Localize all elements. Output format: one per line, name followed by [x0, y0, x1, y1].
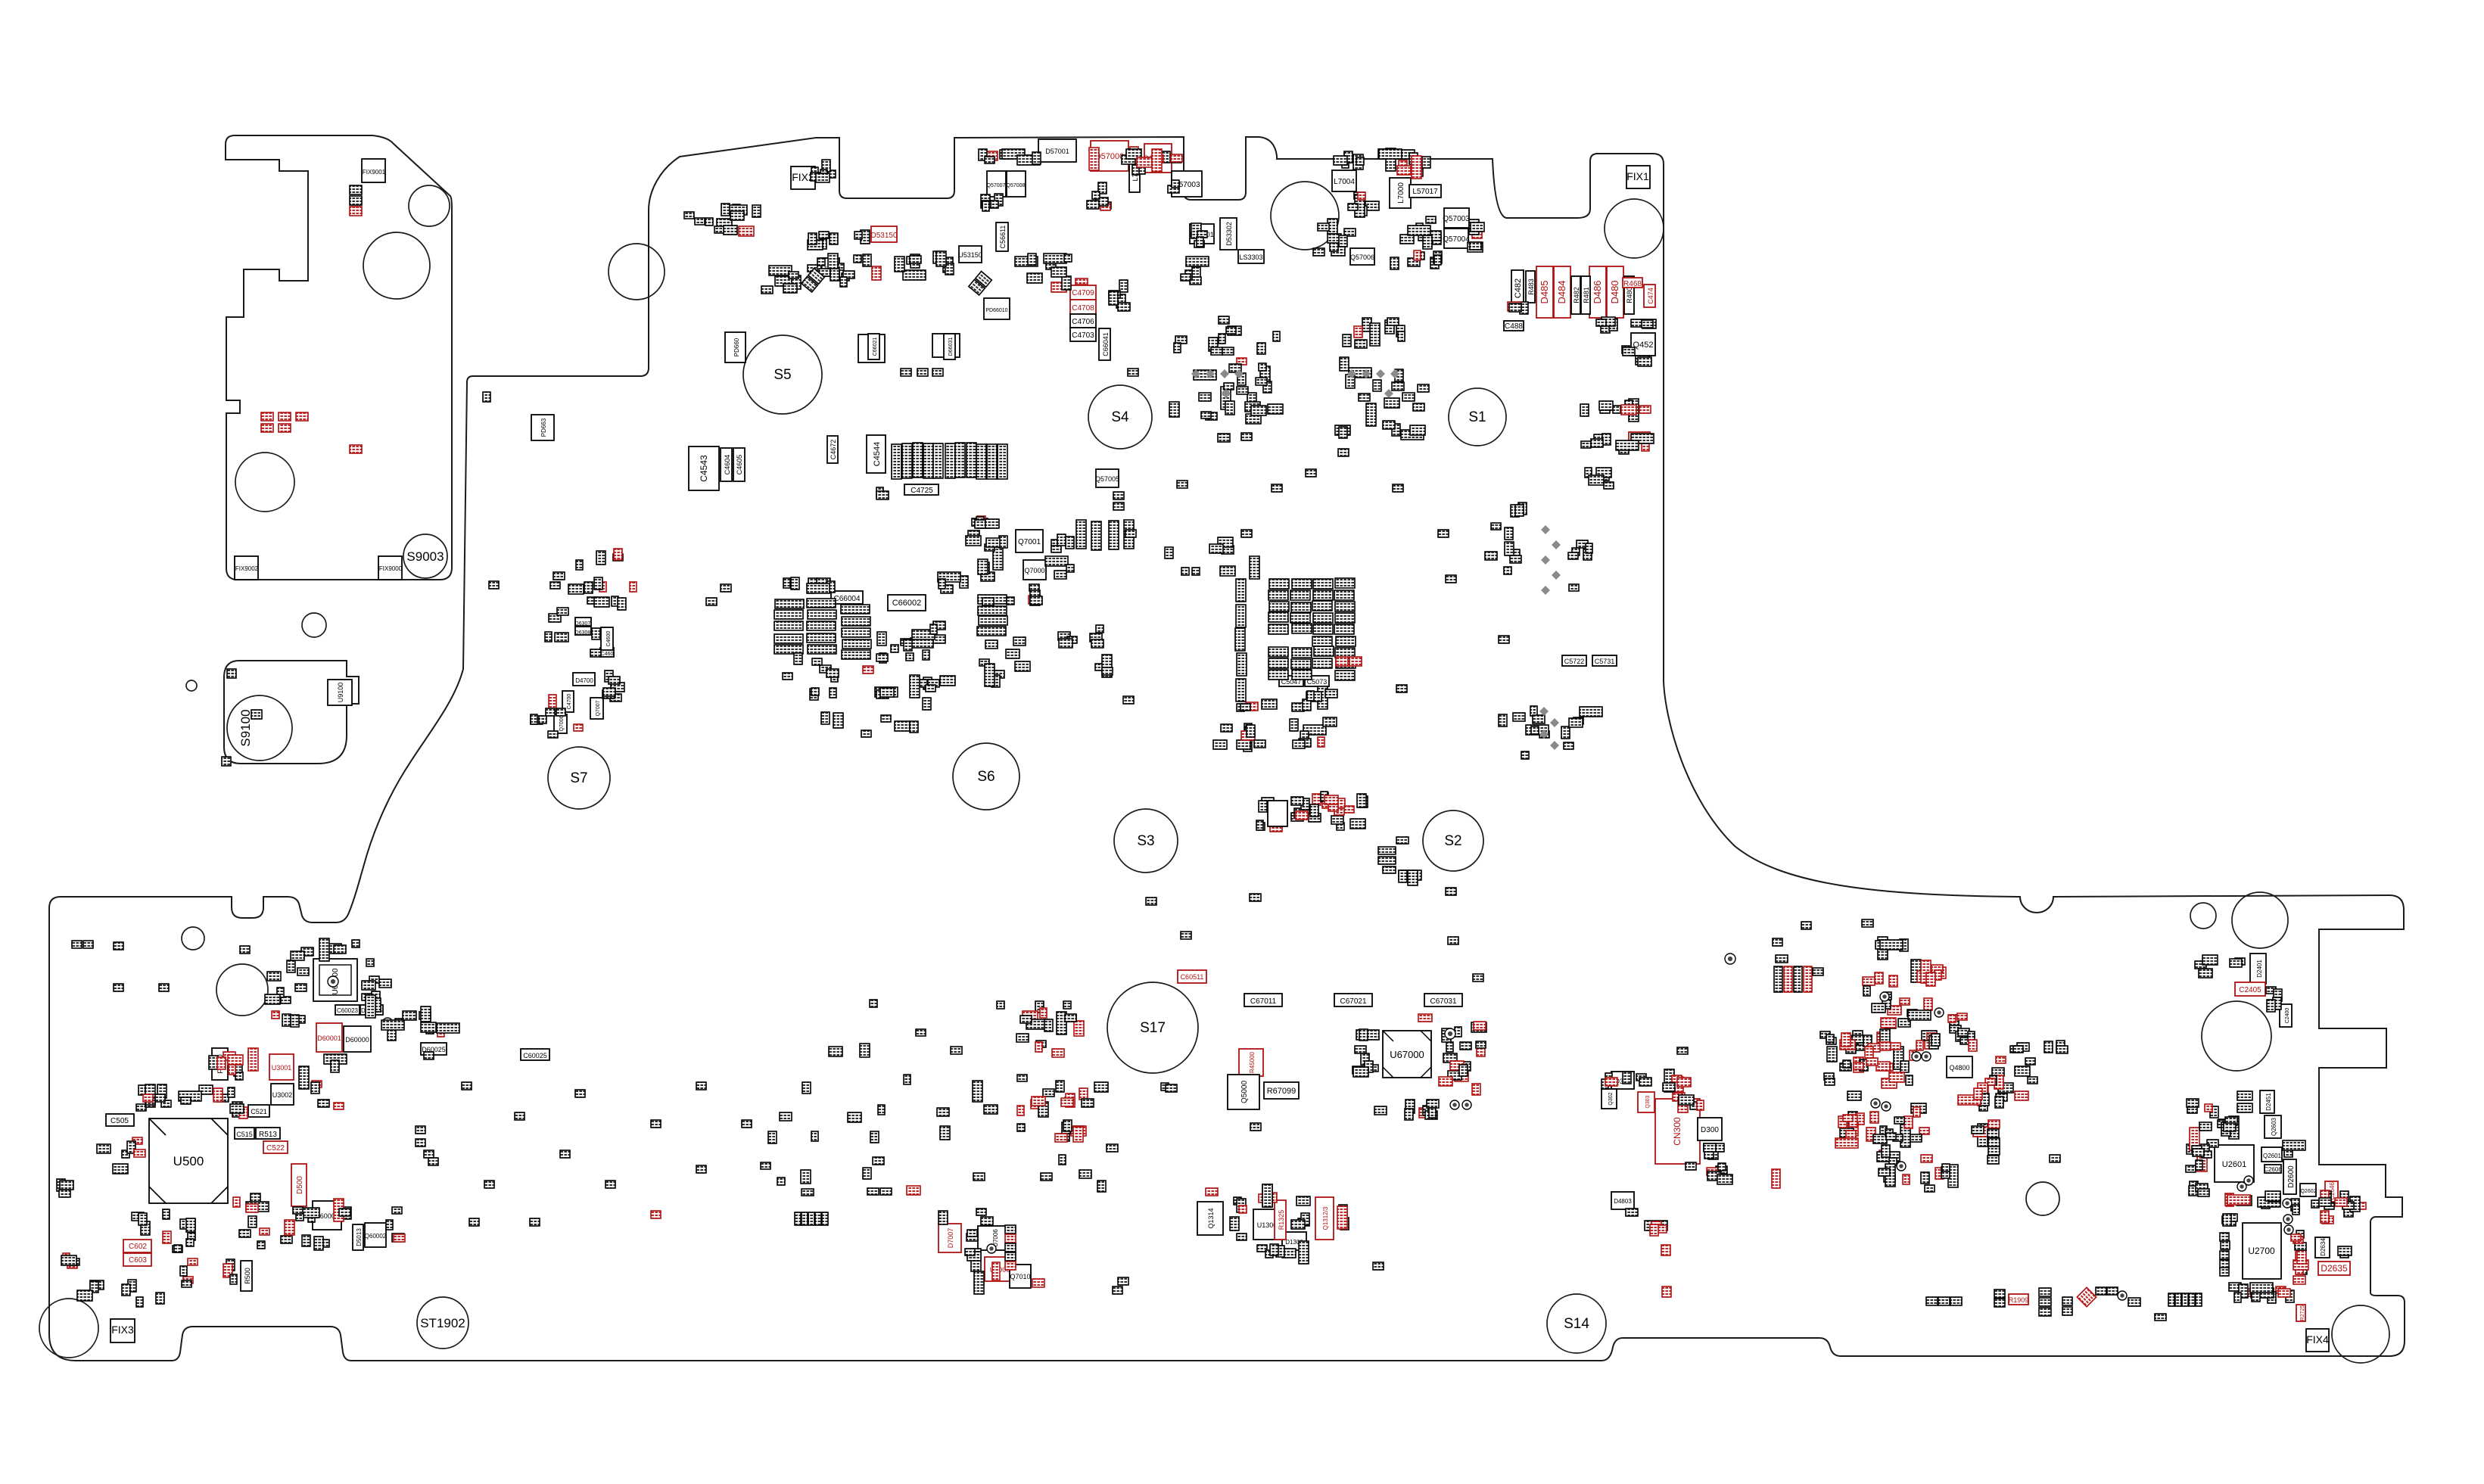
svg-text:C4700: C4700: [567, 694, 572, 710]
svg-text:D300: D300: [1701, 1126, 1719, 1134]
svg-text:Q2603: Q2603: [2271, 1117, 2277, 1136]
svg-text:D2634: D2634: [2320, 1238, 2327, 1256]
svg-text:D485: D485: [1539, 280, 1550, 303]
svg-text:U3001: U3001: [272, 1064, 292, 1072]
svg-text:Q7007: Q7007: [596, 700, 601, 716]
svg-text:S4: S4: [1111, 409, 1129, 425]
svg-text:Q7000: Q7000: [1024, 567, 1044, 574]
svg-text:C2400: C2400: [2285, 1008, 2290, 1024]
svg-text:U2700: U2700: [2248, 1246, 2275, 1256]
svg-text:R513: R513: [259, 1131, 277, 1139]
svg-text:FIX9002: FIX9002: [235, 565, 259, 572]
svg-text:R468: R468: [1623, 280, 1642, 288]
svg-text:Q57005: Q57005: [1095, 475, 1119, 483]
svg-text:S14: S14: [1564, 1316, 1589, 1332]
svg-text:Q7001: Q7001: [1018, 538, 1041, 546]
svg-text:S6: S6: [977, 769, 995, 785]
svg-text:R1325: R1325: [1278, 1210, 1285, 1230]
svg-text:C66021: C66021: [873, 338, 878, 356]
svg-text:LS3303: LS3303: [1239, 254, 1262, 261]
svg-text:R2725: R2725: [2300, 1305, 2305, 1321]
svg-text:C67011: C67011: [1250, 997, 1277, 1006]
svg-text:D66031: D66031: [948, 338, 954, 356]
svg-text:Q1314: Q1314: [1207, 1208, 1215, 1228]
svg-text:C56611: C56611: [999, 226, 1007, 249]
svg-text:S7: S7: [570, 770, 587, 786]
svg-text:C4672: C4672: [830, 440, 837, 460]
svg-text:C66041: C66041: [1102, 332, 1110, 356]
svg-text:S1: S1: [1468, 409, 1486, 425]
svg-text:Q60002: Q60002: [365, 1233, 387, 1240]
svg-text:C460: C460: [601, 652, 614, 657]
svg-text:D4803: D4803: [1614, 1198, 1632, 1205]
svg-text:Q302: Q302: [1608, 1092, 1614, 1105]
svg-text:R482: R482: [1573, 287, 1580, 303]
svg-text:R481: R481: [1583, 287, 1590, 303]
svg-text:D60000: D60000: [345, 1036, 369, 1044]
svg-text:C4725: C4725: [910, 487, 933, 495]
svg-text:C60025: C60025: [523, 1052, 547, 1059]
svg-text:FIX9000: FIX9000: [379, 565, 403, 572]
svg-text:S17: S17: [1140, 1020, 1166, 1036]
svg-text:U2601: U2601: [2222, 1160, 2246, 1169]
svg-text:C474: C474: [1647, 288, 1654, 304]
svg-text:R480: R480: [1626, 287, 1633, 303]
svg-text:R483: R483: [1527, 278, 1535, 295]
svg-text:CN300: CN300: [1672, 1117, 1682, 1146]
svg-text:FIX9001: FIX9001: [363, 169, 386, 176]
svg-text:Q7010: Q7010: [1010, 1273, 1030, 1280]
svg-text:C521: C521: [251, 1108, 267, 1115]
svg-text:U3002: U3002: [272, 1091, 293, 1099]
svg-text:D60001: D60001: [317, 1034, 341, 1042]
svg-text:D7007: D7007: [947, 1228, 954, 1249]
svg-text:S9100: S9100: [238, 709, 253, 746]
svg-text:Q57004: Q57004: [1443, 235, 1470, 244]
svg-text:C2405: C2405: [2239, 986, 2261, 994]
svg-text:D486: D486: [1592, 280, 1603, 303]
svg-text:C522: C522: [266, 1144, 285, 1153]
svg-text:S3: S3: [1137, 833, 1154, 849]
svg-text:L7000: L7000: [1397, 182, 1405, 204]
svg-text:FIX3: FIX3: [111, 1324, 134, 1336]
svg-text:Q303: Q303: [1645, 1095, 1651, 1108]
svg-text:D6307: D6307: [575, 621, 591, 627]
svg-text:R1909: R1909: [2009, 1296, 2029, 1304]
svg-text:U9100: U9100: [337, 683, 344, 703]
svg-text:Q7006: Q7006: [559, 715, 565, 731]
svg-text:D500: D500: [296, 1176, 304, 1194]
svg-text:S5: S5: [774, 367, 791, 383]
svg-text:C4600: C4600: [606, 631, 612, 647]
svg-text:D2635: D2635: [2321, 1263, 2348, 1274]
svg-text:U53150: U53150: [958, 251, 982, 259]
svg-text:D2451: D2451: [2265, 1093, 2272, 1111]
svg-text:L7004: L7004: [1334, 178, 1355, 186]
svg-text:Q4800: Q4800: [1949, 1064, 1969, 1072]
svg-text:Q57003: Q57003: [1443, 215, 1470, 223]
svg-text:D4700: D4700: [575, 677, 593, 684]
svg-text:ST1902: ST1902: [420, 1316, 465, 1330]
svg-text:Q2602: Q2602: [2300, 1189, 2316, 1194]
svg-text:R67099: R67099: [1267, 1087, 1296, 1096]
svg-text:C4706: C4706: [1072, 318, 1094, 326]
svg-text:D57001: D57001: [1045, 148, 1069, 155]
svg-text:R45000: R45000: [1249, 1051, 1256, 1073]
svg-text:C4543: C4543: [699, 455, 709, 482]
svg-text:C67021: C67021: [1340, 997, 1366, 1006]
svg-text:C488: C488: [1505, 322, 1523, 331]
svg-text:C602: C602: [129, 1243, 147, 1251]
svg-text:Q57008: Q57008: [1007, 183, 1026, 188]
svg-text:Q57007: Q57007: [987, 183, 1006, 188]
svg-text:D53302: D53302: [1225, 222, 1233, 246]
svg-text:D6308: D6308: [575, 630, 591, 636]
svg-text:U67000: U67000: [1390, 1049, 1424, 1060]
svg-text:Q2601: Q2601: [2263, 1153, 2282, 1159]
svg-text:C4708: C4708: [1072, 304, 1094, 313]
svg-text:C67031: C67031: [1430, 997, 1456, 1006]
svg-text:U500: U500: [173, 1154, 204, 1168]
svg-text:C2606: C2606: [2264, 1166, 2282, 1173]
svg-text:C60023: C60023: [337, 1007, 359, 1014]
svg-text:C5731: C5731: [1595, 658, 1615, 665]
svg-text:C515: C515: [236, 1131, 253, 1138]
svg-text:Q5000: Q5000: [1240, 1081, 1249, 1103]
svg-text:D484: D484: [1556, 280, 1567, 303]
svg-text:D5013: D5013: [356, 1228, 363, 1246]
svg-text:C66002: C66002: [892, 599, 922, 608]
svg-text:C4709: C4709: [1072, 289, 1094, 297]
svg-text:PD66010: PD66010: [985, 308, 1007, 313]
svg-text:D53150: D53150: [870, 232, 897, 240]
svg-text:C505: C505: [111, 1117, 129, 1125]
svg-text:L57017: L57017: [1412, 188, 1438, 196]
svg-text:D480: D480: [1609, 280, 1620, 303]
svg-text:D2401: D2401: [2256, 960, 2263, 978]
svg-text:C66004: C66004: [833, 595, 860, 603]
svg-text:C4703: C4703: [1072, 331, 1094, 340]
svg-text:FIX1: FIX1: [1626, 170, 1649, 182]
svg-text:C4544: C4544: [873, 442, 882, 466]
svg-text:C482: C482: [1514, 278, 1523, 298]
svg-text:D2600: D2600: [2287, 1165, 2296, 1188]
svg-text:C4605: C4605: [736, 455, 743, 475]
svg-text:PD663: PD663: [540, 418, 547, 437]
svg-text:C60511: C60511: [1181, 973, 1204, 981]
svg-text:Q57006: Q57006: [1350, 254, 1374, 261]
svg-text:C5722: C5722: [1564, 658, 1585, 665]
svg-text:C4604: C4604: [724, 455, 731, 475]
svg-text:Q1312/3: Q1312/3: [1322, 1206, 1329, 1230]
svg-text:FIX4: FIX4: [2306, 1333, 2329, 1346]
svg-text:C603: C603: [129, 1256, 147, 1265]
svg-text:Q452: Q452: [1633, 341, 1654, 350]
svg-text:R500: R500: [244, 1268, 251, 1284]
svg-text:PD660: PD660: [733, 338, 740, 356]
svg-text:S2: S2: [1444, 833, 1461, 849]
svg-text:S9003: S9003: [406, 549, 444, 564]
